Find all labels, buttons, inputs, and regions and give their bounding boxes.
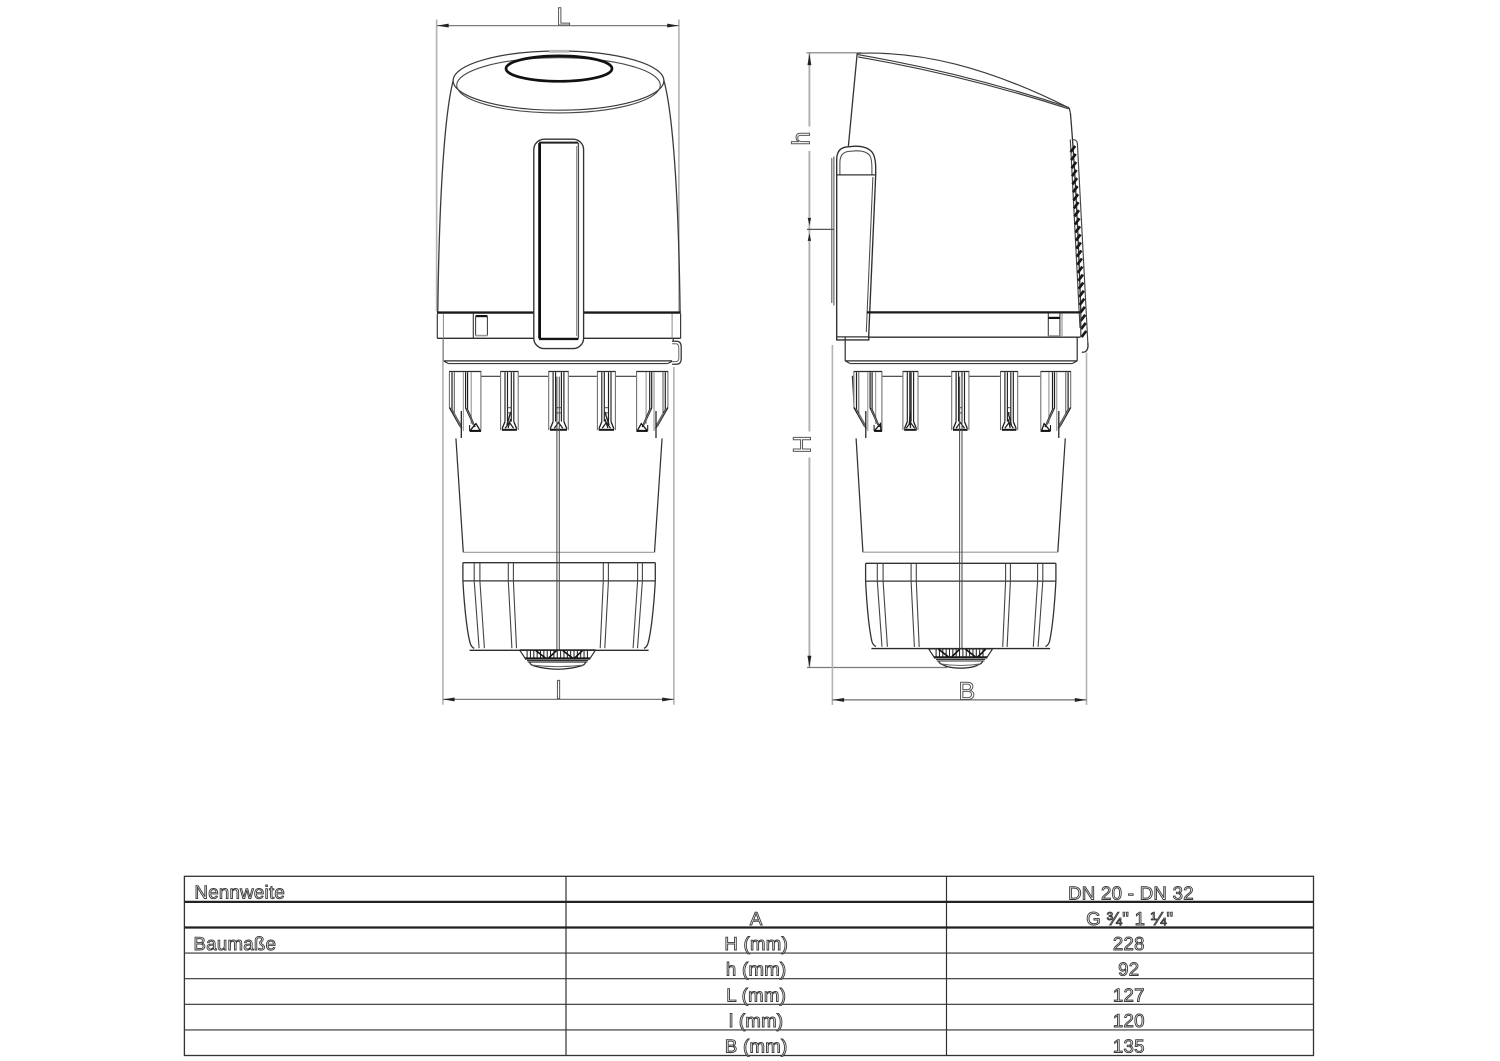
svg-text:H (mm): H (mm) — [724, 933, 788, 954]
svg-text:135: 135 — [1113, 1036, 1145, 1057]
svg-text:DN 20 - DN 32: DN 20 - DN 32 — [1068, 882, 1194, 903]
svg-text:L (mm): L (mm) — [726, 984, 786, 1005]
svg-text:127: 127 — [1113, 984, 1145, 1005]
svg-text:B (mm): B (mm) — [725, 1036, 788, 1057]
svg-text:B: B — [959, 678, 976, 706]
svg-text:A: A — [750, 908, 763, 929]
svg-text:l (mm): l (mm) — [729, 1010, 783, 1031]
svg-text:Nennweite: Nennweite — [195, 882, 286, 903]
svg-text:H: H — [789, 435, 817, 453]
svg-text:h (mm): h (mm) — [726, 959, 787, 980]
svg-text:L: L — [557, 3, 571, 31]
svg-text:G ¾" 1 ¼": G ¾" 1 ¼" — [1086, 908, 1173, 929]
svg-text:l: l — [556, 676, 562, 704]
svg-text:Baumaße: Baumaße — [194, 933, 277, 954]
svg-text:228: 228 — [1113, 933, 1145, 954]
svg-text:92: 92 — [1118, 959, 1139, 980]
svg-text:h: h — [788, 132, 816, 146]
svg-text:120: 120 — [1113, 1010, 1145, 1031]
